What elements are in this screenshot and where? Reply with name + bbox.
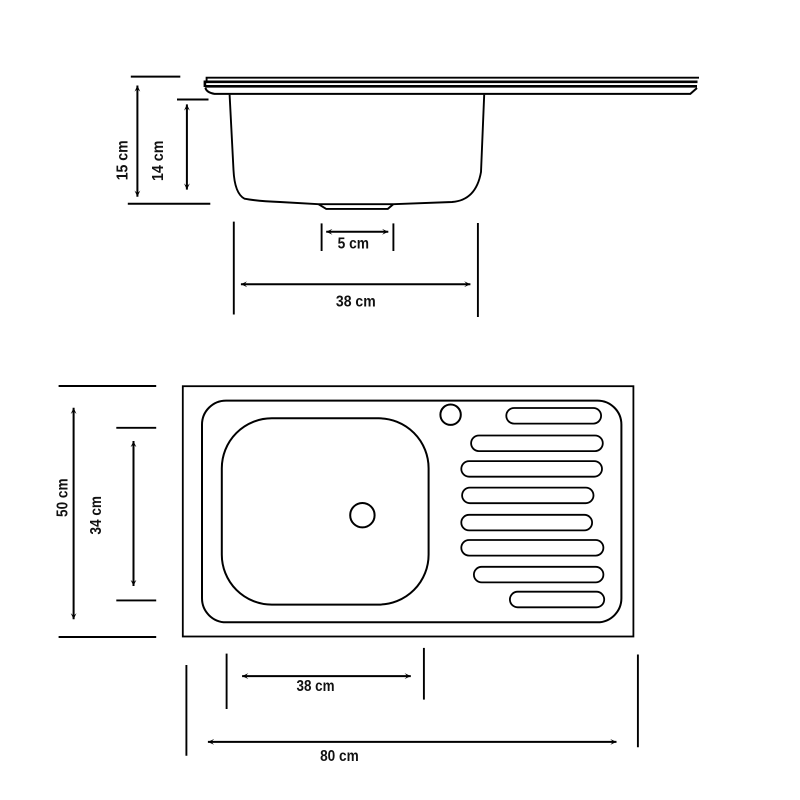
- svg-text:38 cm: 38 cm: [336, 294, 376, 311]
- svg-text:15 cm: 15 cm: [115, 140, 132, 180]
- svg-text:50 cm: 50 cm: [54, 478, 71, 517]
- svg-text:34 cm: 34 cm: [88, 496, 105, 535]
- svg-text:14 cm: 14 cm: [150, 141, 167, 182]
- svg-text:5 cm: 5 cm: [338, 235, 369, 252]
- svg-text:38 cm: 38 cm: [297, 678, 335, 695]
- svg-text:80 cm: 80 cm: [320, 748, 359, 765]
